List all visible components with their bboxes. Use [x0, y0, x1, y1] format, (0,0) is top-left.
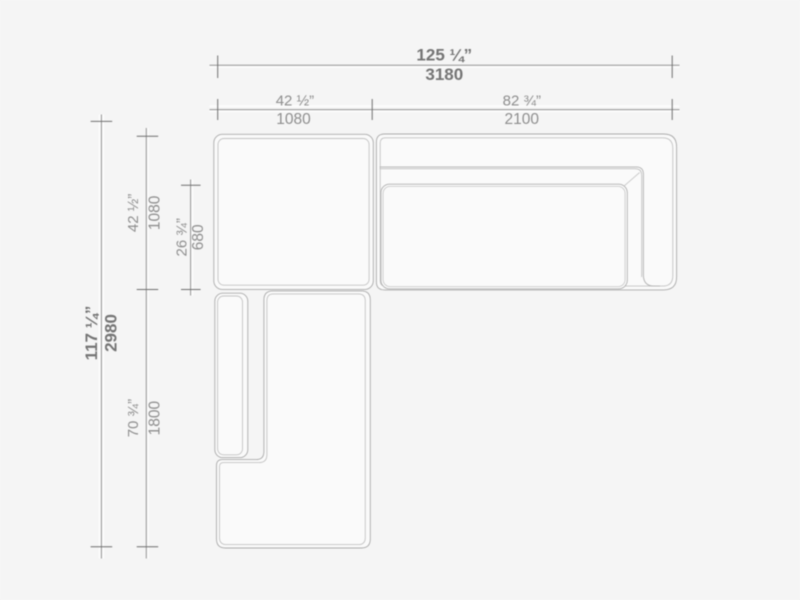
svg-text:125 ¼”: 125 ¼” — [416, 46, 472, 65]
svg-text:42 ½”: 42 ½” — [276, 93, 314, 110]
svg-text:3180: 3180 — [425, 65, 463, 84]
svg-text:2980: 2980 — [101, 314, 120, 352]
svg-text:42 ½”: 42 ½” — [125, 194, 142, 232]
svg-text:82 ¾”: 82 ¾” — [503, 93, 541, 110]
svg-text:1080: 1080 — [146, 195, 163, 230]
svg-text:70 ¾”: 70 ¾” — [125, 399, 142, 437]
svg-text:680: 680 — [190, 224, 207, 250]
svg-text:2100: 2100 — [505, 111, 540, 128]
svg-text:1080: 1080 — [276, 111, 311, 128]
svg-text:117 ¼”: 117 ¼” — [82, 306, 101, 361]
svg-text:1800: 1800 — [146, 400, 163, 435]
svg-text:26 ¾”: 26 ¾” — [173, 218, 190, 256]
